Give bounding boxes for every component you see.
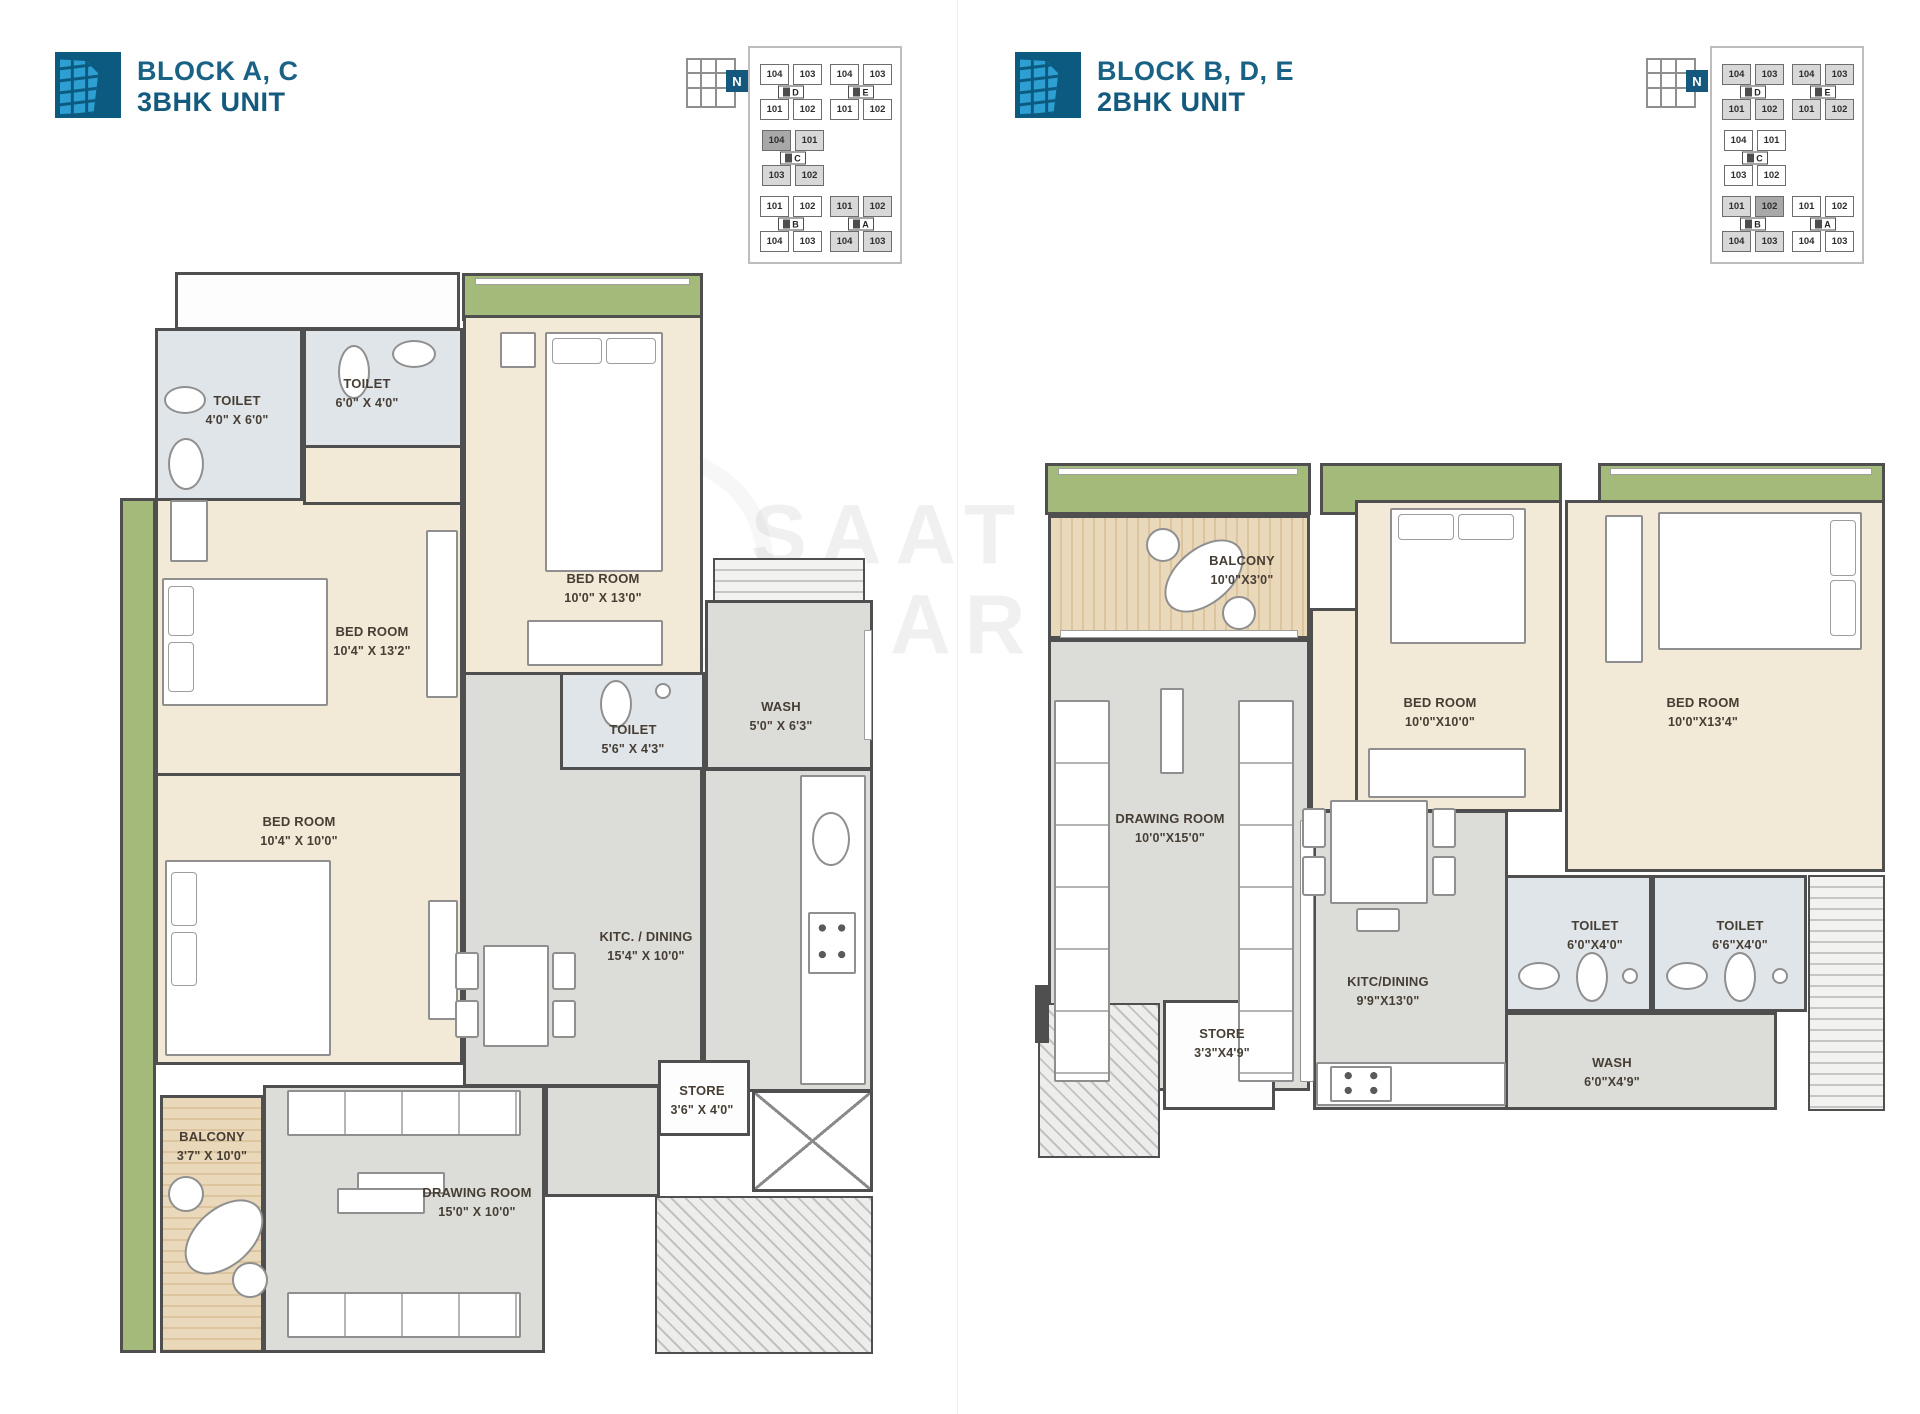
entrance-wall (1035, 985, 1049, 1043)
service-ledge (1808, 875, 1885, 1111)
builder-logo-icon (55, 52, 121, 118)
wash-basin (164, 386, 206, 414)
toilet-wc (168, 438, 204, 490)
bed (545, 332, 663, 572)
window (1058, 468, 1298, 475)
north-indicator-icon: N (686, 58, 742, 110)
dining-table (1330, 800, 1428, 904)
room-label-store: STORE3'3"X4'9" (1194, 1024, 1250, 1062)
key-plan-left: 104 103 101 102 D 104 103 101 102 E 104 … (748, 46, 902, 264)
wardrobe (426, 530, 458, 698)
dining-table (483, 945, 549, 1047)
room-label-kitchen: KITC. / DINING15'4" X 10'0" (599, 927, 692, 965)
wash-basin (1518, 962, 1560, 990)
balcony-chair (168, 1176, 204, 1212)
pillow (1830, 520, 1856, 576)
balcony-chair (232, 1262, 268, 1298)
pillow (552, 338, 602, 364)
chair (1432, 808, 1456, 848)
kitchen-sink (812, 812, 850, 866)
terrace-steps (655, 1196, 873, 1354)
room-label-kitchen: KITC/DINING9'9"X13'0" (1347, 972, 1429, 1010)
wash-basin (392, 340, 436, 368)
keyplan-block-c: 104 101 103 102 C (1724, 130, 1786, 186)
room-label-toilet-1: TOILET4'0" X 6'0" (205, 391, 268, 429)
wardrobe (1368, 748, 1526, 798)
wash-area (705, 600, 873, 770)
keyplan-block-a: 101 102 104 103 A (1792, 196, 1854, 252)
north-letter: N (726, 70, 748, 92)
tap (1772, 968, 1788, 984)
floor-plan-sheet: SAAT BAAR BLOCK A, C 3BHK UNIT N 104 103… (0, 0, 1920, 1414)
pillow (168, 642, 194, 692)
planter-left (120, 498, 156, 1353)
chair (1302, 808, 1326, 848)
block-title: BLOCK A, C (137, 56, 299, 87)
keyplan-block-b: 101 102 104 103 B (760, 196, 822, 252)
pillow (1830, 580, 1856, 636)
tv-unit (1160, 688, 1184, 774)
panel-divider (957, 0, 958, 1414)
room-label-toilet-2: TOILET6'6"X4'0" (1712, 916, 1768, 954)
window (1610, 468, 1872, 475)
room-label-bedroom-2: BED ROOM10'4" X 13'2" (333, 622, 410, 660)
keyplan-block-e: 104 103 101 102 E (830, 64, 892, 120)
room-label-toilet-3: TOILET5'6" X 4'3" (601, 720, 664, 758)
dresser (170, 500, 208, 562)
stove (808, 912, 856, 974)
pillow (606, 338, 656, 364)
block-title: BLOCK B, D, E (1097, 56, 1294, 87)
room-label-balcony: BALCONY10'0"X3'0" (1209, 551, 1275, 589)
room-label-bedroom-3: BED ROOM10'4" X 10'0" (260, 812, 337, 850)
room-label-balcony: BALCONY3'7" X 10'0" (177, 1127, 247, 1165)
tv-table (337, 1188, 425, 1214)
toilet-wc (1724, 952, 1756, 1002)
keyplan-block-d: 104 103 101 102 D (1722, 64, 1784, 120)
chair (455, 952, 479, 990)
keyplan-block-d: 104 103 101 102 D (760, 64, 822, 120)
bedroom-2-entry (303, 445, 463, 505)
chair (1432, 856, 1456, 896)
toilet-wc (1576, 952, 1608, 1002)
lift-shaft (752, 1090, 873, 1192)
north-letter: N (1686, 70, 1708, 92)
sliding-window (1060, 630, 1298, 638)
bedside-table (500, 332, 536, 368)
room-label-wash: WASH6'0"X4'9" (1584, 1053, 1640, 1091)
unit-title: 3BHK UNIT (137, 87, 299, 118)
wash-ledge (713, 558, 865, 602)
pillow (168, 586, 194, 636)
wardrobe (1605, 515, 1643, 663)
keyplan-block-c: 104 101 103 102 C (762, 130, 824, 186)
left-panel-title: BLOCK A, C 3BHK UNIT (137, 56, 299, 118)
key-plan-right: 104 103 101 102 D 104 103 101 102 E 104 … (1710, 46, 1864, 264)
room-label-bedroom-1: BED ROOM10'0"X10'0" (1403, 693, 1476, 731)
pillow (1458, 514, 1514, 540)
wash-area (1505, 1012, 1777, 1110)
keyplan-block-b: 101 102 104 103 B (1722, 196, 1784, 252)
room-label-drawing: DRAWING ROOM10'0"X15'0" (1115, 809, 1224, 847)
wardrobe (428, 900, 458, 1020)
tap (1622, 968, 1638, 984)
unit-title: 2BHK UNIT (1097, 87, 1294, 118)
pillow (1398, 514, 1454, 540)
sofa (287, 1090, 521, 1136)
sofa (287, 1292, 521, 1338)
window (864, 630, 872, 740)
room-label-toilet-2: TOILET6'0" X 4'0" (335, 374, 398, 412)
room-label-toilet-1: TOILET6'0"X4'0" (1567, 916, 1623, 954)
balcony-chair (1146, 528, 1180, 562)
north-indicator-icon: N (1646, 58, 1702, 110)
builder-logo-icon (1015, 52, 1081, 118)
pillow (171, 932, 197, 986)
wash-basin (1666, 962, 1708, 990)
room-label-bedroom-1: BED ROOM10'0" X 13'0" (564, 569, 641, 607)
room-label-wash: WASH5'0" X 6'3" (749, 697, 812, 735)
pillow (171, 872, 197, 926)
chair (1356, 908, 1400, 932)
balcony-chair (1222, 596, 1256, 630)
chair (455, 1000, 479, 1038)
chair (1302, 856, 1326, 896)
tap (655, 683, 671, 699)
stove (1330, 1066, 1392, 1102)
wardrobe (527, 620, 663, 666)
right-panel-title: BLOCK B, D, E 2BHK UNIT (1097, 56, 1294, 118)
room-label-bedroom-2: BED ROOM10'0"X13'4" (1666, 693, 1739, 731)
kitchen-passage (545, 1085, 660, 1197)
keyplan-block-e: 104 103 101 102 E (1792, 64, 1854, 120)
room-label-store: STORE3'6" X 4'0" (670, 1081, 733, 1119)
sofa (1054, 700, 1110, 1082)
entry-corridor (175, 272, 460, 330)
chair (552, 1000, 576, 1038)
keyplan-block-a: 101 102 104 103 A (830, 196, 892, 252)
chair (552, 952, 576, 990)
window (475, 278, 690, 285)
room-label-drawing: DRAWING ROOM15'0" X 10'0" (422, 1183, 531, 1221)
